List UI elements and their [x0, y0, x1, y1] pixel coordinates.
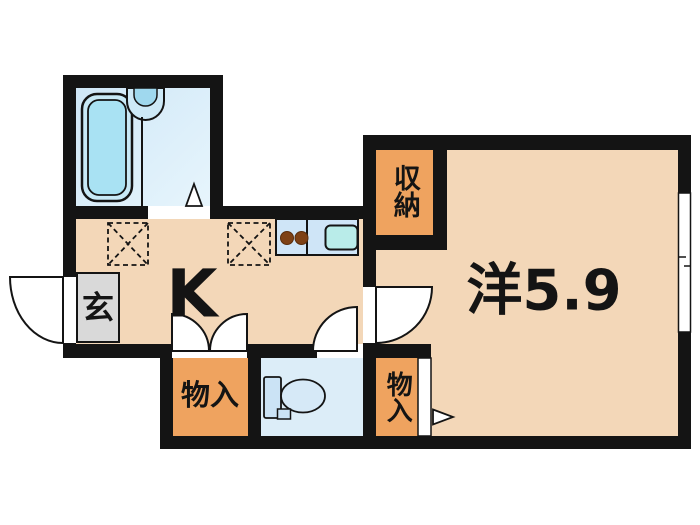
storage-left-door-opening — [172, 344, 247, 358]
entrance-door-arc — [10, 277, 63, 343]
storage-left-label: 物入 — [181, 381, 239, 411]
bathroom-floor — [76, 88, 210, 206]
wall-segment — [363, 135, 691, 150]
wall-segment — [210, 75, 223, 219]
toilet-door-opening — [317, 344, 363, 358]
floorplan-canvas: K 洋5.9 玄 収納 物入 物入 — [0, 0, 700, 525]
toilet-room-floor — [261, 358, 363, 436]
closet-label: 収納 — [390, 164, 418, 218]
wall-segment — [678, 135, 691, 449]
wall-segment — [433, 135, 447, 250]
entrance-label: 玄 — [82, 292, 114, 325]
wall-segment — [248, 344, 261, 449]
bathroom-door-threshold — [148, 206, 210, 219]
wall-segment — [363, 235, 447, 250]
wall-segment — [376, 344, 431, 358]
entrance-door-opening — [63, 277, 76, 343]
room-door-opening — [363, 287, 376, 343]
kitchen-label: K — [166, 260, 217, 327]
wall-segment — [160, 344, 173, 449]
western-room-label: 洋5.9 — [466, 262, 621, 319]
wall-segment — [160, 436, 691, 449]
wall-segment — [63, 75, 223, 88]
storage-right-label: 物入 — [384, 371, 411, 423]
wall-segment — [63, 206, 376, 219]
